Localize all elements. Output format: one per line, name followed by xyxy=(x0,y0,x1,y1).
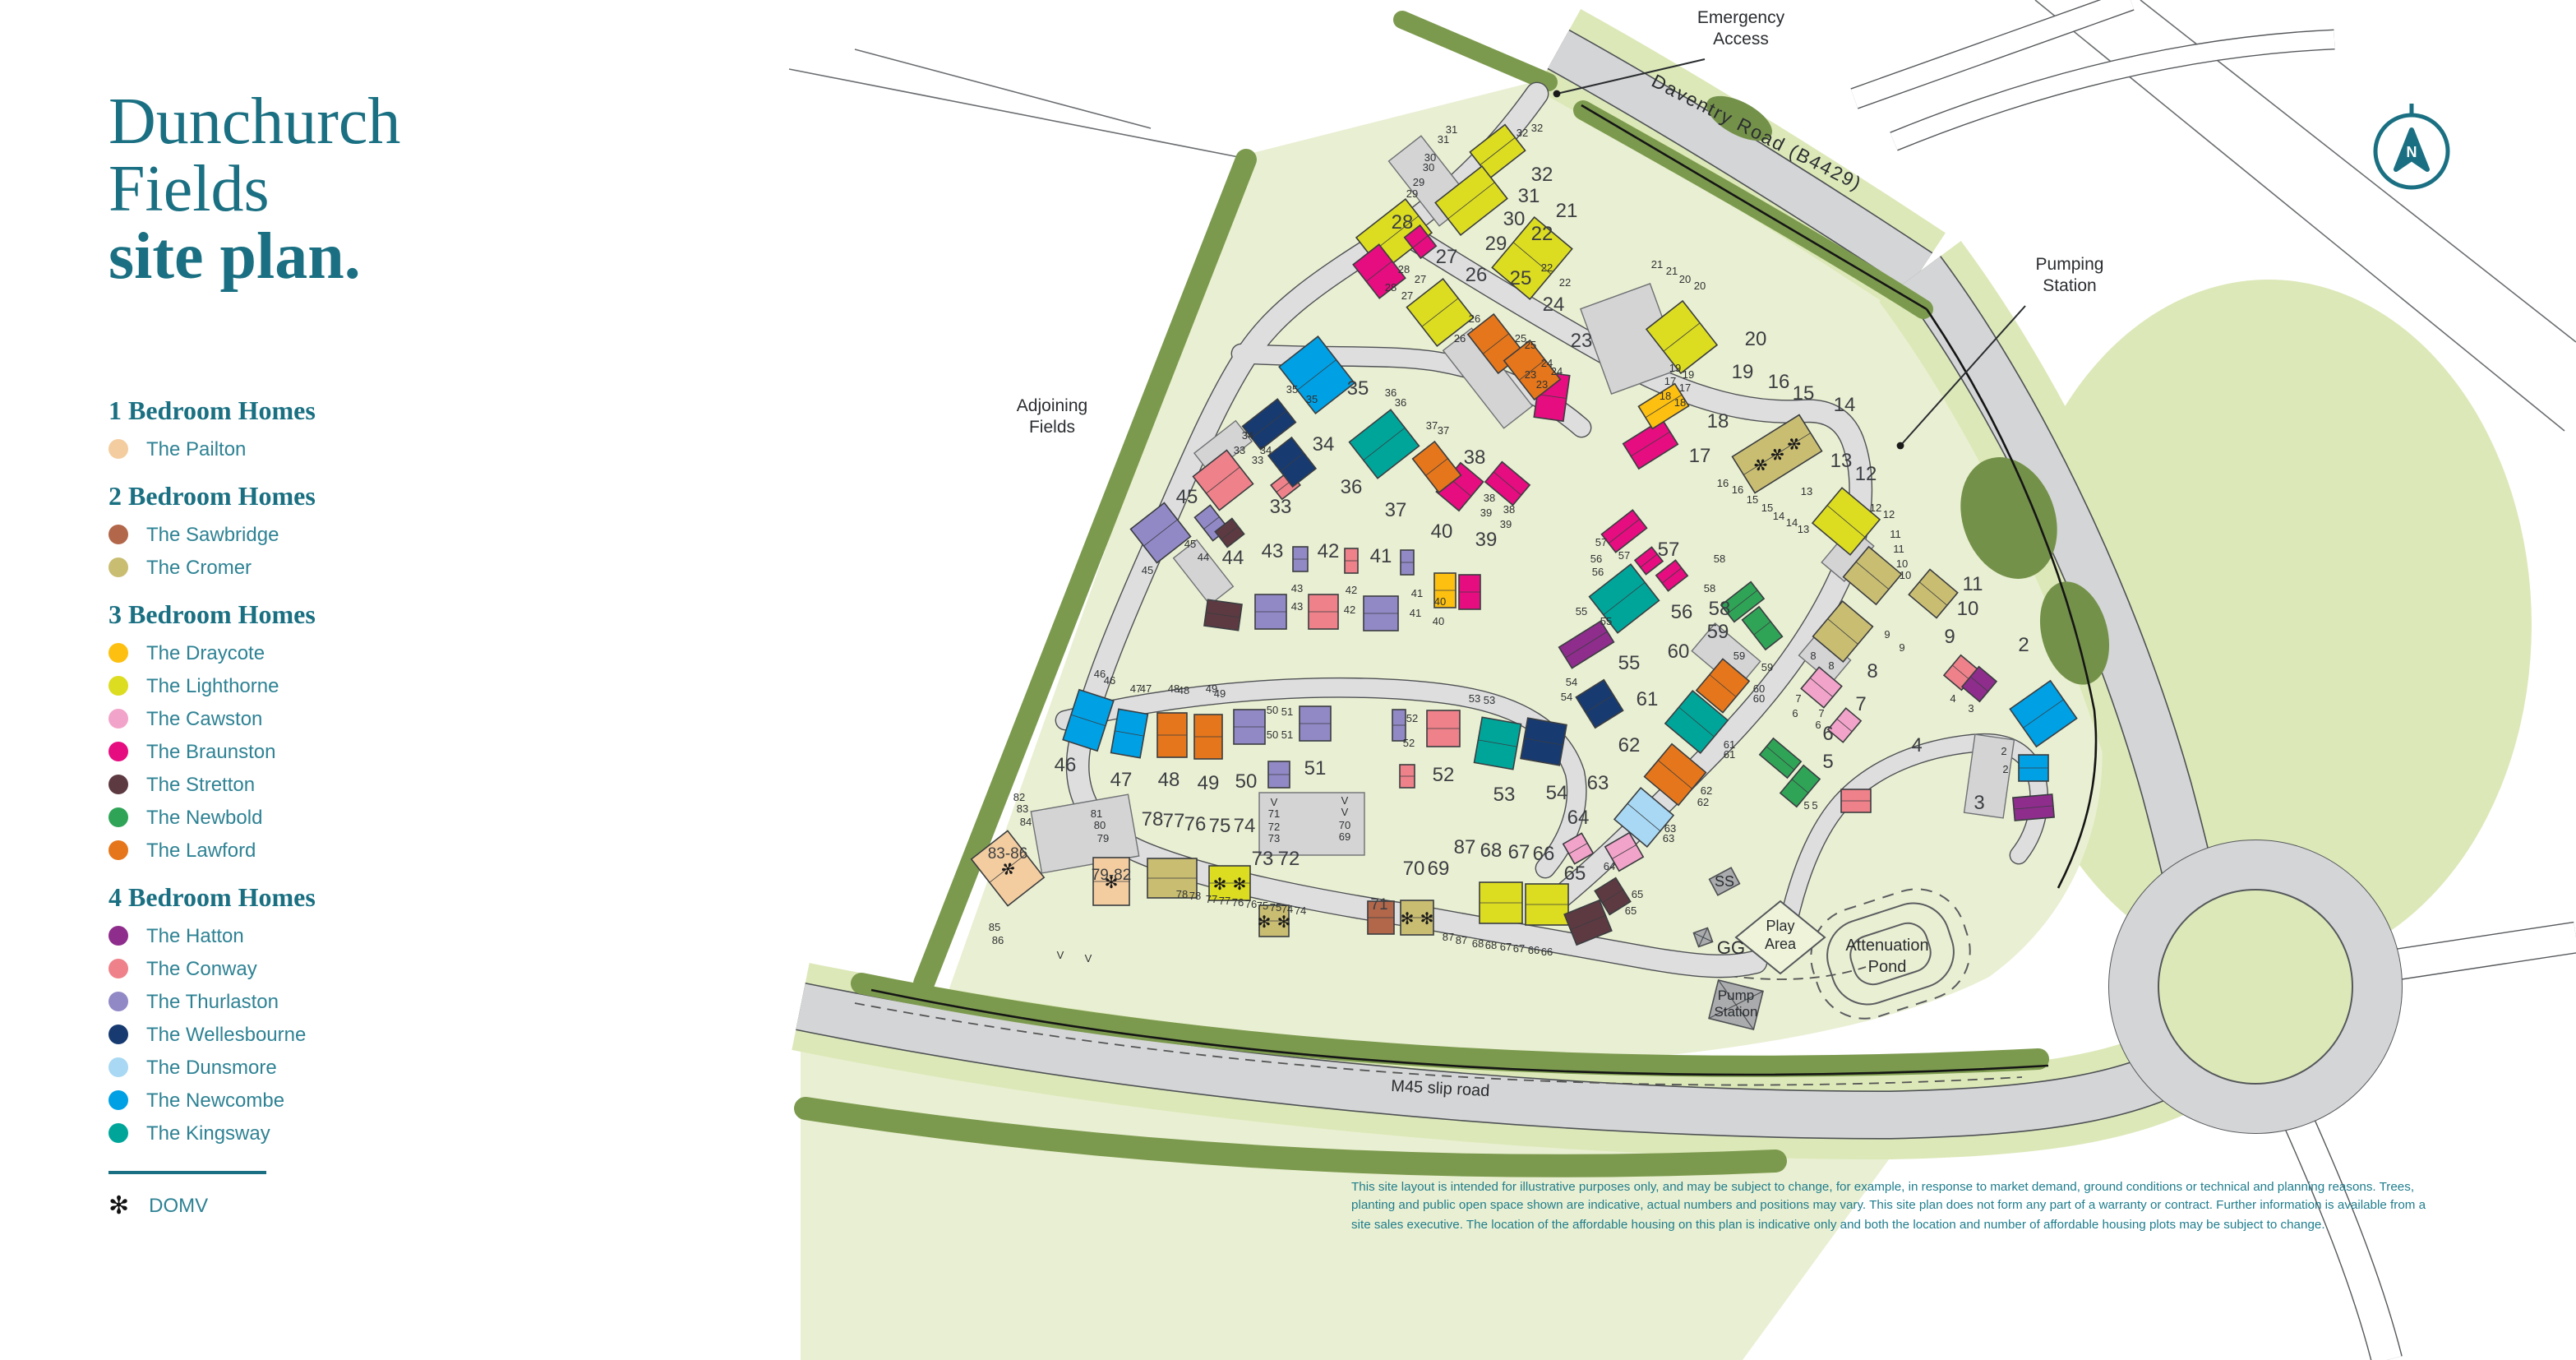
garage-number: 17 xyxy=(1664,375,1676,387)
plot-number: 2 xyxy=(2018,634,2029,656)
garage-number: 53 xyxy=(1484,694,1495,706)
legend-item-label: The Braunston xyxy=(146,740,275,763)
plot-number: 33 xyxy=(1270,496,1292,518)
garage-number: 32 xyxy=(1517,127,1528,139)
title-line3: site plan. xyxy=(108,223,700,290)
plot-number: 21 xyxy=(1556,200,1578,222)
field-boundary-line xyxy=(789,69,1243,158)
plot-number: 76 xyxy=(1184,813,1207,835)
garage-number: 40 xyxy=(1433,615,1444,627)
garage-number: 9 xyxy=(1899,641,1904,654)
garage-number: 28 xyxy=(1398,263,1410,275)
legend-item-label: The Newcombe xyxy=(146,1089,284,1112)
garage-number: 16 xyxy=(1732,483,1743,496)
plot-number: 30 xyxy=(1503,208,1526,230)
garage-number: 13 xyxy=(1801,485,1812,497)
legend-section-heading: 4 Bedroom Homes xyxy=(108,885,667,914)
domv-asterisk-icon: ✻ xyxy=(108,1191,129,1220)
legend-swatch-icon xyxy=(108,742,128,761)
garage-number: 81 xyxy=(1091,807,1102,820)
garage-number: 77 xyxy=(1206,893,1217,905)
plot-number: 26 xyxy=(1466,264,1488,286)
plot-building-thurlaston xyxy=(1293,547,1308,571)
plot-number: 9 xyxy=(1944,626,1955,648)
plot-number: 41 xyxy=(1370,545,1392,567)
garage-number: 74 xyxy=(1295,904,1306,917)
legend-item-label: The Thurlaston xyxy=(146,990,279,1013)
garage-number: 49 xyxy=(1214,687,1226,700)
garage-number: 21 xyxy=(1651,258,1663,271)
road-white xyxy=(2380,937,2576,967)
garage-number: 78 xyxy=(1176,888,1188,900)
legend-section-heading: 3 Bedroom Homes xyxy=(108,602,667,631)
garage-number: 2 xyxy=(2002,763,2008,775)
legend-item-label: The Draycote xyxy=(146,641,265,664)
plot-range-number: 83-86 xyxy=(988,845,1028,863)
plot-number: 78 xyxy=(1142,808,1164,830)
garage-number: 71 xyxy=(1268,807,1280,820)
plot-building-thurlaston xyxy=(1234,710,1265,744)
plot-number: 67 xyxy=(1508,841,1530,863)
plot-number: 68 xyxy=(1480,840,1503,862)
plot-number: 61 xyxy=(1637,688,1659,710)
garage-number: 3 xyxy=(1968,702,1974,715)
plot-building-lawford xyxy=(1157,713,1187,757)
legend-swatch-icon xyxy=(108,709,128,729)
title-line1: Dunchurch xyxy=(108,89,700,156)
plot-building-conway xyxy=(1427,710,1460,747)
plot-number: 14 xyxy=(1834,394,1856,416)
legend-item-label: The Wellesbourne xyxy=(146,1023,306,1046)
plot-number: 52 xyxy=(1433,764,1455,786)
domv-label: DOMV xyxy=(149,1194,208,1217)
legend-swatch-icon xyxy=(108,525,128,544)
plot-number: 45 xyxy=(1176,486,1198,508)
legend-swatch-icon xyxy=(108,840,128,860)
plot-number: 55 xyxy=(1618,652,1641,674)
garage-number: 40 xyxy=(1434,595,1446,608)
domv-asterisk-icon: ✻ xyxy=(1233,876,1247,894)
plot-number: 36 xyxy=(1341,476,1363,498)
garage-number: 85 xyxy=(989,921,1000,933)
plot-number: 72 xyxy=(1278,848,1300,870)
garage-number: 26 xyxy=(1454,332,1466,345)
plot-number: 64 xyxy=(1567,807,1590,829)
legend-swatch-icon xyxy=(108,1057,128,1077)
legend-section-heading: 1 Bedroom Homes xyxy=(108,398,667,428)
plot-building-cromer: ✻✻ xyxy=(1401,900,1434,935)
garage-number: 23 xyxy=(1525,368,1536,381)
garage-number: 30 xyxy=(1423,161,1434,173)
garage-number: 29 xyxy=(1413,176,1424,188)
garage-number: 9 xyxy=(1884,628,1890,641)
legend-swatch-icon xyxy=(108,992,128,1011)
garage-number: 53 xyxy=(1469,692,1480,705)
garage-number: 83 xyxy=(1017,803,1028,815)
garage-number: 42 xyxy=(1344,604,1355,616)
legend-swatch-icon xyxy=(108,926,128,946)
legend-item-stretton: The Stretton xyxy=(108,773,667,796)
garage-number: 34 xyxy=(1242,429,1253,442)
garage-number: 86 xyxy=(992,934,1004,946)
legend-item-label: The Kingsway xyxy=(146,1122,270,1145)
garage-number: 43 xyxy=(1291,582,1303,594)
plot-number: 87 xyxy=(1454,836,1476,858)
plot-number: 18 xyxy=(1707,410,1729,433)
legend-swatch-icon xyxy=(108,1090,128,1110)
plot-number: 15 xyxy=(1793,382,1815,405)
map-label: Pond xyxy=(1868,958,1907,976)
garage-number: 64 xyxy=(1604,860,1615,872)
legend-item-label: The Lawford xyxy=(146,839,256,862)
garage-number: 76 xyxy=(1232,896,1244,909)
plot-building-thurlaston xyxy=(1300,706,1331,741)
garage-number: 73 xyxy=(1268,832,1280,844)
plot-number: 51 xyxy=(1304,757,1327,779)
legend-item-label: The Cromer xyxy=(146,556,252,579)
garage-number: 12 xyxy=(1870,502,1881,514)
title-line2: Fields xyxy=(108,156,700,224)
plot-number: 25 xyxy=(1510,267,1532,289)
legend-swatch-icon xyxy=(108,439,128,459)
plot-number: 17 xyxy=(1689,445,1711,467)
map-label: Play xyxy=(1766,918,1794,934)
leader-dot xyxy=(1553,90,1561,98)
garage-number: 72 xyxy=(1268,821,1280,833)
garage-number: 52 xyxy=(1406,712,1418,724)
legend-item-conway: The Conway xyxy=(108,957,667,980)
garage-number: 46 xyxy=(1104,674,1115,687)
domv-asterisk-icon: ✻ xyxy=(1277,914,1291,932)
plot-building-stretton xyxy=(1204,599,1242,631)
garage-number: 59 xyxy=(1761,661,1773,673)
legend-item-hatton: The Hatton xyxy=(108,924,667,947)
garage-number: 21 xyxy=(1666,265,1678,277)
garage-number: 62 xyxy=(1697,796,1709,808)
hedge xyxy=(1402,20,1549,82)
plot-number: 28 xyxy=(1392,211,1414,234)
legend-swatch-icon xyxy=(108,959,128,978)
legend-item-lighthorne: The Lighthorne xyxy=(108,674,667,697)
plot-number: 22 xyxy=(1531,223,1553,245)
legend-swatch-icon xyxy=(108,1123,128,1143)
garage-number: 80 xyxy=(1094,819,1106,831)
garage-number: 27 xyxy=(1401,289,1413,302)
legend-section-heading: 2 Bedroom Homes xyxy=(108,483,667,513)
garage-number: 50 xyxy=(1267,704,1278,716)
legend-swatch-icon xyxy=(108,807,128,827)
map-label: Fields xyxy=(1029,418,1075,437)
garage-number: 22 xyxy=(1559,276,1571,289)
garage-number: 33 xyxy=(1252,454,1263,466)
plot-range-number: 79-82 xyxy=(1092,867,1132,884)
garage-number: 61 xyxy=(1724,748,1735,761)
garage-number: V xyxy=(1057,949,1064,961)
garage-number: V xyxy=(1341,806,1349,818)
map-label: Station xyxy=(1715,1004,1758,1020)
garage-number: 55 xyxy=(1600,615,1612,627)
garage-number: 57 xyxy=(1618,549,1630,562)
plot-building-thurlaston xyxy=(1255,594,1286,629)
plot-number: 6 xyxy=(1822,723,1833,745)
domv-asterisk-icon: ✻ xyxy=(1258,914,1272,932)
garage-number: 6 xyxy=(1815,719,1821,731)
plot-building-newcombe xyxy=(2019,755,2048,781)
garage-number: 50 xyxy=(1267,729,1278,741)
garage-number: V xyxy=(1341,794,1349,807)
plot-building-conway xyxy=(1309,594,1338,629)
garage-number: 37 xyxy=(1438,424,1449,437)
garage-number: 45 xyxy=(1184,538,1196,550)
garage-number: 17 xyxy=(1679,382,1691,394)
garage-number: 47 xyxy=(1140,682,1152,695)
garage-number: 22 xyxy=(1541,261,1553,274)
legend-item-wellesbourne: The Wellesbourne xyxy=(108,1023,667,1046)
garage-number: 38 xyxy=(1503,503,1515,516)
garage-number: 42 xyxy=(1346,584,1357,596)
garage-number: 84 xyxy=(1020,816,1032,828)
plot-number: 42 xyxy=(1318,540,1340,562)
garage-number: 32 xyxy=(1531,122,1543,134)
garage-number: V xyxy=(1085,952,1092,964)
garage-number: 69 xyxy=(1339,830,1350,843)
plot-number: 74 xyxy=(1234,815,1256,837)
plot-number: 56 xyxy=(1671,601,1693,623)
map-label: Station xyxy=(2043,276,2096,295)
plot-range-number: 71 xyxy=(1370,896,1387,914)
plot-building-conway xyxy=(1345,548,1358,573)
garage-number: 16 xyxy=(1717,477,1729,489)
garage-number: 54 xyxy=(1561,691,1572,703)
legend-item-label: The Pailton xyxy=(146,437,246,460)
disclaimer-text: This site layout is intended for illustr… xyxy=(1351,1177,2436,1233)
garage-number: 54 xyxy=(1566,676,1577,688)
plot-number: 24 xyxy=(1543,294,1565,316)
plot-number: 39 xyxy=(1475,529,1498,551)
garage-number: 44 xyxy=(1198,551,1209,563)
legend-item-cawston: The Cawston xyxy=(108,707,667,730)
map-label: Access xyxy=(1713,30,1769,49)
garage-number: 18 xyxy=(1674,396,1686,409)
plot-number: 16 xyxy=(1768,371,1790,393)
plot-number: 54 xyxy=(1546,782,1568,804)
garage-number: 41 xyxy=(1410,607,1421,619)
map-label: Pumping xyxy=(2036,255,2104,274)
map-label: GG xyxy=(1717,937,1745,958)
garage-number: 15 xyxy=(1761,502,1773,514)
compass-n-label: N xyxy=(2407,144,2417,160)
legend-item-label: The Dunsmore xyxy=(146,1056,277,1079)
garage-number: 87 xyxy=(1443,931,1454,943)
plot-number: 32 xyxy=(1531,164,1553,186)
garage-number: 26 xyxy=(1469,312,1480,325)
garage-number: 39 xyxy=(1500,518,1512,530)
legend-divider xyxy=(108,1171,266,1174)
garage-number: 56 xyxy=(1592,566,1604,578)
legend-item-label: The Newbold xyxy=(146,806,262,829)
plot-number: 38 xyxy=(1464,446,1486,469)
legend-item-label: The Hatton xyxy=(146,924,244,947)
garage-number: 36 xyxy=(1395,396,1406,409)
plot-number: 57 xyxy=(1658,539,1680,561)
garage-number: 75 xyxy=(1257,900,1268,912)
plot-building-kingsway xyxy=(1475,717,1521,769)
page-title: Dunchurch Fields site plan. xyxy=(108,89,700,290)
legend-item-dunsmore: The Dunsmore xyxy=(108,1056,667,1079)
garage-number: 14 xyxy=(1773,510,1784,522)
legend-item-pailton: The Pailton xyxy=(108,437,667,460)
garage-number: 68 xyxy=(1485,939,1497,951)
legend-item-draycote: The Draycote xyxy=(108,641,667,664)
plot-number: 4 xyxy=(1911,734,1922,756)
map-label: Attenuation xyxy=(1845,937,1928,955)
plot-number: 34 xyxy=(1313,433,1335,456)
plot-number: 13 xyxy=(1830,450,1853,472)
plot-number: 27 xyxy=(1436,246,1458,268)
plot-number: 75 xyxy=(1209,815,1231,837)
legend-item-label: The Lighthorne xyxy=(146,674,279,697)
garage-number: 18 xyxy=(1660,390,1671,402)
garage-number: 10 xyxy=(1896,557,1908,570)
garage-number: 35 xyxy=(1306,393,1318,405)
map-label: Adjoining xyxy=(1017,396,1087,415)
garage-number: 5 xyxy=(1812,799,1817,812)
garage-number: 70 xyxy=(1339,819,1350,831)
plot-number: 11 xyxy=(1963,573,1983,595)
plot-number: 8 xyxy=(1867,660,1877,682)
plot-building-conway xyxy=(1400,765,1415,788)
plot-building-lighthorne xyxy=(1480,882,1522,923)
garage-number: 7 xyxy=(1818,707,1824,719)
garage-number: 66 xyxy=(1541,946,1553,958)
garage-number: 74 xyxy=(1281,903,1293,915)
garage-number: 11 xyxy=(1890,528,1901,540)
garage-number: 5 xyxy=(1803,799,1809,812)
legend-item-label: The Cawston xyxy=(146,707,262,730)
garage-number: V xyxy=(1271,796,1278,808)
plot-number: 43 xyxy=(1262,540,1284,562)
garage-number: 67 xyxy=(1513,942,1525,955)
plot-number: 65 xyxy=(1564,863,1586,885)
garage-number: 57 xyxy=(1595,536,1607,548)
plot-building-thurlaston xyxy=(1401,550,1414,575)
legend-domv: ✻DOMV xyxy=(108,1191,667,1220)
plot-number: 3 xyxy=(1974,792,1984,814)
legend-swatch-icon xyxy=(108,557,128,577)
garage-number: 4 xyxy=(1950,692,1955,705)
plot-number: 58 xyxy=(1709,598,1731,620)
plot-building-wellesbourne xyxy=(1521,718,1567,766)
garage-number: 7 xyxy=(1795,692,1801,705)
plot-number: 40 xyxy=(1431,520,1453,543)
legend-item-label: The Conway xyxy=(146,957,257,980)
garage-number: 33 xyxy=(1234,444,1245,456)
plot-number: 70 xyxy=(1403,858,1425,880)
garage-number: 68 xyxy=(1472,937,1484,950)
site-plan-page: ✻✻✻✻✻✻✻✻✻✻✻23456789101112131415161718192… xyxy=(0,0,2576,1360)
garage-number: 29 xyxy=(1406,187,1418,200)
garage-number: 52 xyxy=(1403,737,1415,749)
plot-number: 20 xyxy=(1745,328,1767,350)
legend-swatch-icon xyxy=(108,775,128,794)
garage-number: 65 xyxy=(1625,904,1637,917)
plot-building-hatton xyxy=(2013,794,2054,821)
garage-number: 10 xyxy=(1900,569,1911,581)
domv-asterisk-icon: ✻ xyxy=(1420,910,1434,928)
garage-number: 51 xyxy=(1281,729,1293,741)
plot-number: 35 xyxy=(1347,377,1369,400)
plot-number: 53 xyxy=(1493,784,1516,806)
map-label: Area xyxy=(1765,936,1797,952)
plot-number: 49 xyxy=(1198,772,1220,794)
garage-number: 20 xyxy=(1679,273,1691,285)
garage-number: 45 xyxy=(1142,564,1153,576)
plot-number: 29 xyxy=(1485,233,1507,255)
plot-number: 44 xyxy=(1222,547,1244,569)
garage-number: 14 xyxy=(1786,516,1798,529)
legend-swatch-icon xyxy=(108,676,128,696)
legend-item-label: The Sawbridge xyxy=(146,523,279,546)
legend-item-label: The Stretton xyxy=(146,773,255,796)
plot-number: 19 xyxy=(1732,361,1754,383)
garage-number: 59 xyxy=(1733,650,1745,662)
plot-number: 31 xyxy=(1518,185,1540,207)
garage-number: 35 xyxy=(1286,383,1298,396)
plot-number: 62 xyxy=(1618,734,1641,756)
plot-building-thurlaston xyxy=(1364,596,1398,631)
plot-number: 37 xyxy=(1385,499,1407,521)
plot-number: 47 xyxy=(1110,769,1133,791)
garage-number: 19 xyxy=(1683,368,1694,381)
garage-number: 65 xyxy=(1632,888,1643,900)
legend-item-lawford: The Lawford xyxy=(108,839,667,862)
map-label: Emergency xyxy=(1697,8,1785,27)
map-label: SS xyxy=(1715,873,1734,890)
roundabout-island xyxy=(2158,890,2352,1084)
garage-number: 8 xyxy=(1828,659,1834,672)
plot-number: 5 xyxy=(1822,751,1833,773)
garage-number: 58 xyxy=(1704,582,1715,594)
garage-number: 13 xyxy=(1798,523,1809,535)
plot-number: 48 xyxy=(1158,769,1180,791)
map-label: Pump xyxy=(1718,988,1754,1003)
garage-number: 25 xyxy=(1525,339,1536,351)
garage-number: 56 xyxy=(1590,553,1602,565)
garage-number: 37 xyxy=(1426,419,1438,432)
legend-item-newbold: The Newbold xyxy=(108,806,667,829)
garage-number: 28 xyxy=(1385,281,1396,294)
header: Dunchurch Fields site plan. xyxy=(108,89,700,290)
garage-number: 31 xyxy=(1438,133,1449,146)
garage-number: 79 xyxy=(1097,832,1109,844)
plot-number: 63 xyxy=(1587,772,1609,794)
domv-asterisk-icon: ✻ xyxy=(1401,910,1415,928)
garage-number: 15 xyxy=(1747,493,1758,506)
leader-dot xyxy=(1897,442,1904,450)
legend: 1 Bedroom HomesThe Pailton2 Bedroom Home… xyxy=(108,375,667,1220)
garage-number: 60 xyxy=(1753,692,1765,705)
plot-building-braunston xyxy=(1459,575,1480,609)
plot-building-conway xyxy=(1841,789,1871,812)
garage-number: 24 xyxy=(1551,365,1563,377)
plot-number: 23 xyxy=(1571,330,1593,352)
garage-number: 8 xyxy=(1810,650,1816,662)
garage-number: 55 xyxy=(1576,605,1587,618)
plot-number: 10 xyxy=(1957,598,1979,620)
garage-number: 23 xyxy=(1536,378,1548,391)
garage-number: 6 xyxy=(1792,707,1798,719)
garage-number: 58 xyxy=(1714,553,1725,565)
